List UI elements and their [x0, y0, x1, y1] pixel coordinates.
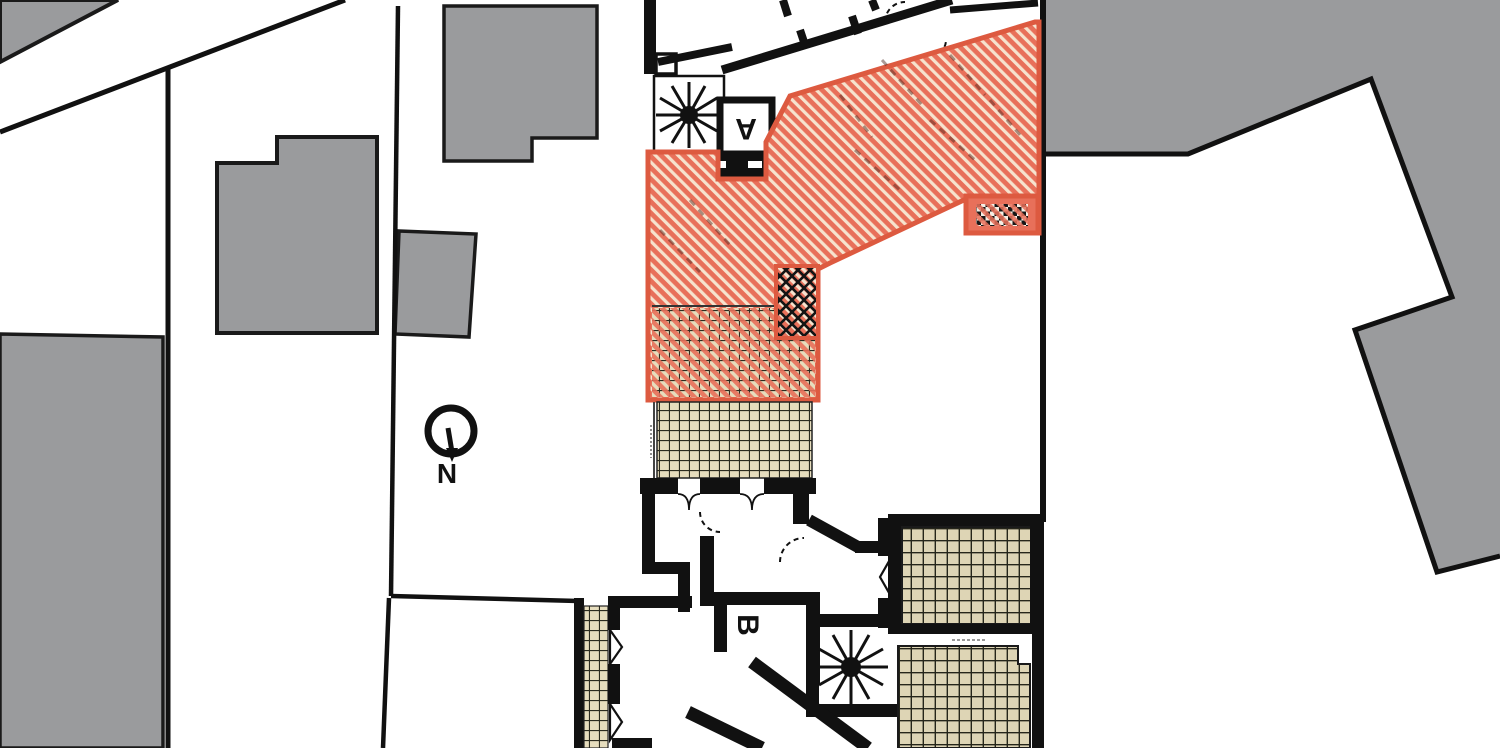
stair-room-bottom-wall-top	[815, 614, 895, 627]
wall-stub-4	[872, 0, 876, 10]
terrace-right-wall-top	[888, 514, 1043, 527]
balcony-wall-right-1	[608, 600, 620, 630]
neighbor-building-left-small	[395, 231, 476, 337]
unit-void-crosshatch	[776, 266, 818, 338]
neighbor-building-left	[217, 137, 377, 333]
stair-core-b-label: B	[731, 614, 764, 636]
wall-stub-3	[783, 0, 788, 16]
terrace-center-tiles	[657, 402, 812, 478]
neighbor-building-top-center	[444, 6, 597, 161]
wall-interior-1	[700, 536, 714, 606]
wall-extension-top	[608, 596, 692, 608]
balcony-wall-left	[574, 598, 584, 748]
terrace-center	[640, 402, 816, 510]
wall-stub-2	[852, 16, 858, 34]
unit-checker-block	[966, 196, 1038, 233]
balcony-wall-right-2	[608, 664, 620, 704]
terrace-right-upper-tiles	[902, 527, 1037, 624]
neighbor-building-bottom-left	[0, 334, 163, 748]
terrace-right-wall-left	[888, 514, 902, 632]
terrace-right-wall-mid	[888, 624, 1038, 634]
north-label: N	[437, 458, 457, 489]
stair-core-a-label: A	[735, 112, 757, 145]
wall-hall-1	[793, 488, 809, 524]
floor-plan-svg: A	[0, 0, 1500, 748]
wall-stub-1	[800, 30, 806, 48]
balcony-tiles	[584, 606, 608, 748]
terrace-right-lower-tiles	[898, 646, 1030, 748]
room-b-wall-left	[714, 592, 727, 652]
wall-bottom-stub	[612, 738, 652, 748]
terrace-right-wall-right-2	[1032, 624, 1044, 748]
terrace-right-wall-right-1	[1030, 514, 1044, 624]
wall-left-top	[644, 0, 656, 74]
wall-left-lower	[642, 478, 655, 570]
terraces-right	[888, 514, 1044, 748]
floor-plan-canvas: A	[0, 0, 1500, 748]
room-b-wall-top	[714, 592, 820, 605]
micro-tag-2	[748, 161, 762, 168]
